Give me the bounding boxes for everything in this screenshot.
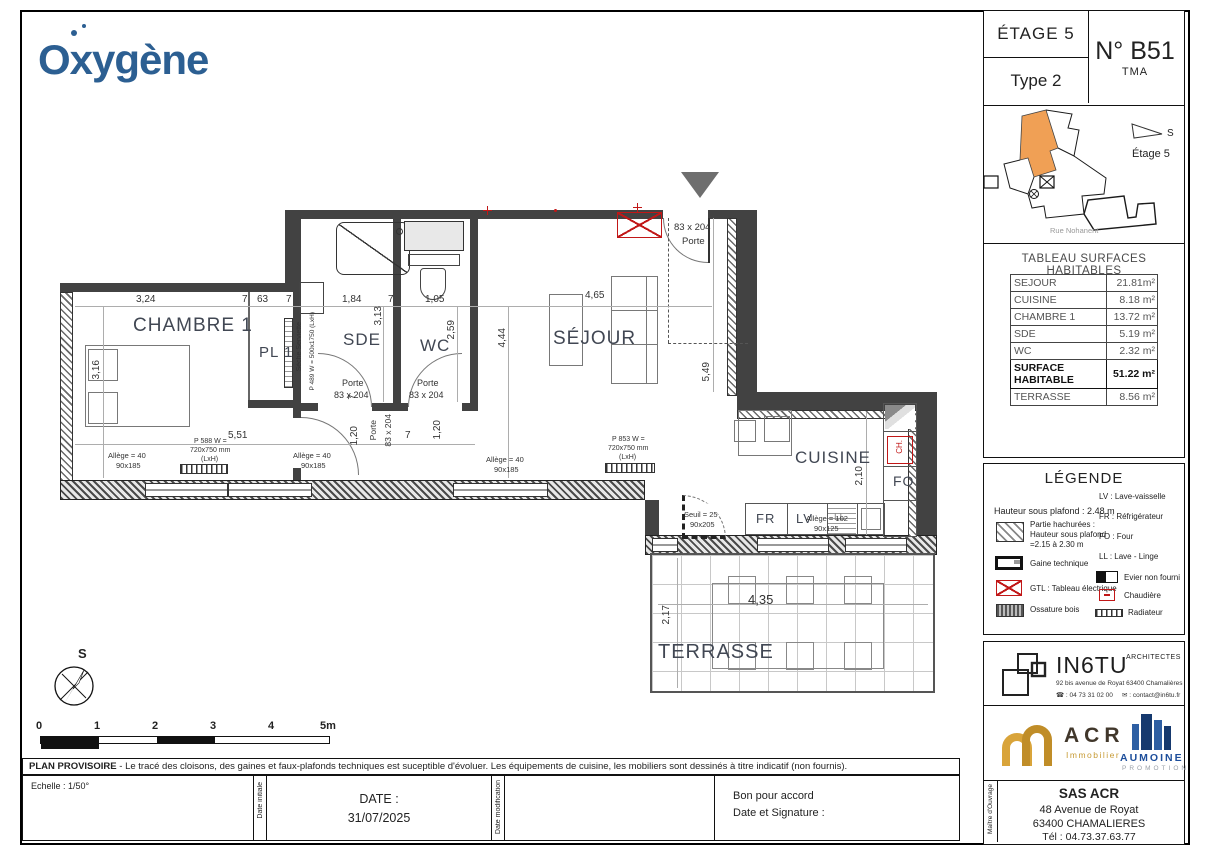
door-label: 83 x 204	[334, 390, 369, 400]
unit-floor-cell: ÉTAGE 5	[984, 11, 1089, 58]
radiator-chambre	[180, 464, 228, 474]
partition-pl1-bottom	[248, 400, 301, 408]
boiler-label: CH.	[895, 440, 904, 454]
chaudiere-icon-mark	[1104, 594, 1110, 596]
map-compass-icon	[1132, 124, 1162, 138]
legend-lv: LV : Lave-vaisselle	[1099, 492, 1166, 501]
terrasse-chair	[844, 642, 872, 670]
wall-kitchen-right	[917, 392, 937, 552]
radiator-label: 720x750 mm	[608, 445, 648, 452]
table-row: CHAMBRE 113.72 m²	[1011, 309, 1158, 326]
terrasse-chair	[786, 642, 814, 670]
dim-549: 5,49	[701, 362, 712, 381]
radiator-sejour	[605, 463, 655, 473]
wall-left-exterior	[60, 292, 73, 488]
disclaimer-title: PLAN PROVISOIRE	[29, 761, 117, 772]
window-label: 90x185	[116, 461, 141, 470]
dim-217: 2,17	[661, 605, 672, 624]
compass-rose-icon	[50, 662, 98, 710]
acr-sub: Immobilier	[1066, 750, 1120, 760]
architect-title: ARCHITECTES	[1126, 654, 1181, 661]
window-cuisine-2	[845, 538, 907, 552]
brand-logo: Oxygène	[38, 36, 208, 84]
window-label: Allège = 40	[293, 451, 331, 460]
dim-313: 3,13	[373, 306, 384, 325]
unit-floor: ÉTAGE 5	[997, 24, 1075, 44]
window-sejour	[453, 483, 548, 497]
owner-tel[interactable]: Tél : 04.73.37.63.77	[998, 831, 1180, 845]
table-row-total: SURFACE HABITABLE51.22 m²	[1011, 360, 1158, 389]
logo-bubble-icon	[82, 24, 86, 28]
hatch-zone-icon	[996, 522, 1024, 542]
aumoine-sub: PROMOTION	[1122, 765, 1189, 772]
legend-gaine: Gaine technique	[1030, 559, 1088, 568]
radiator-label: P 853 W =	[612, 436, 645, 443]
counter-sink	[861, 508, 881, 530]
counter-divider	[787, 503, 788, 535]
column-divider	[883, 466, 917, 467]
unit-highlight	[1020, 110, 1058, 177]
dim-120: 1,20	[432, 420, 443, 439]
wall-chambre-top	[60, 283, 295, 292]
unit-sub: TMA	[1122, 66, 1148, 78]
radiator-label: (LxH)	[619, 454, 636, 461]
scale-segment	[41, 743, 99, 749]
legend-fo: FO : Four	[1099, 532, 1133, 541]
dim-7: 7	[242, 294, 248, 305]
room-label-cuisine: CUISINE	[795, 448, 871, 468]
insulation-sejour-right	[727, 218, 737, 396]
site-map-panel: S Étage 5 Rue Nohanent	[983, 105, 1185, 245]
door-label: Porte	[342, 378, 364, 388]
date-value: 31/07/2025	[267, 809, 491, 828]
surface-label: CHAMBRE 1	[1011, 309, 1107, 326]
credits-panel: IN6TU ARCHITECTES 92 bis avenue de Royat…	[983, 641, 1185, 845]
dim-line	[508, 306, 509, 478]
owner-name: SAS ACR	[998, 785, 1180, 803]
gaine-icon-mark	[1014, 560, 1020, 564]
towel-radiator-label: P 489 W = 500x1750 (LxH)	[309, 312, 316, 390]
sofa-cushion-line	[611, 310, 658, 311]
shower-head-icon	[396, 228, 403, 235]
owner-role: Maître d'Ouvrage	[987, 784, 994, 834]
scale-tick: 3	[210, 720, 216, 732]
dim-7: 7	[286, 294, 292, 305]
radiateur-icon	[1095, 609, 1123, 617]
scale-segment	[157, 737, 215, 743]
legend-radiateur: Radiateur	[1128, 608, 1163, 617]
owner-addr2: 63400 CHAMALIERES	[998, 817, 1180, 831]
map-floor-label: Étage 5	[1132, 148, 1170, 160]
table-row: TERRASSE8.56 m²	[1011, 389, 1158, 406]
window-chambre-mullion	[227, 483, 229, 497]
towel-radiator-label: Sèche Serviette	[296, 322, 303, 371]
ceiling-zone-dash-h	[668, 343, 748, 345]
partition-sde-bottom-1	[301, 403, 318, 411]
dim-444: 4,44	[497, 328, 508, 347]
scale-tick: 5m	[320, 720, 336, 732]
echelle-cell: Echelle : 1/50°	[23, 776, 253, 840]
evier-icon	[1096, 571, 1118, 583]
counter-divider	[857, 503, 858, 535]
chambre-door-stub-top	[293, 408, 301, 418]
column-divider	[883, 431, 917, 432]
owner-addr1: 48 Avenue de Royat	[998, 803, 1180, 817]
dim-line	[103, 306, 104, 478]
ceiling-zone-dash-v	[668, 218, 670, 343]
window-label: 90x125	[814, 524, 839, 533]
radiator-label: 720x750 mm	[190, 447, 230, 454]
appliance-label-fr: FR	[756, 511, 775, 526]
window-label: 90x185	[301, 461, 326, 470]
legend-ceiling: Hauteur sous plafond : 2.48 m	[994, 506, 1115, 516]
dim-7: 7	[405, 430, 411, 441]
kitchen-chair	[734, 420, 756, 442]
chambre-door-stub-bottom	[293, 468, 301, 480]
architect-email[interactable]: ✉ : contact@in6tu.fr	[1122, 691, 1180, 699]
table-row: CUISINE8.18 m²	[1011, 292, 1158, 309]
dim-551: 5,51	[228, 430, 247, 441]
dim-line	[713, 218, 714, 392]
surfaces-table: SEJOUR21.81m² CUISINE8.18 m² CHAMBRE 113…	[1010, 274, 1158, 406]
dim-63: 63	[257, 294, 268, 305]
ossature-icon	[996, 604, 1024, 617]
acr-logo-icon	[998, 718, 1056, 768]
appliance-label-fo: FO	[893, 473, 914, 489]
washbasin	[299, 282, 324, 314]
column-divider	[883, 500, 917, 501]
echelle-label: Echelle : 1/50°	[31, 781, 89, 791]
door-label-rot: 83 x 204	[383, 414, 393, 447]
window-cuisine-1	[757, 538, 829, 552]
sofa-backrest-line	[646, 276, 647, 384]
surface-value: 21.81m²	[1107, 275, 1158, 292]
room-label-sejour: SÉJOUR	[553, 328, 636, 350]
electrical-mark	[637, 203, 638, 212]
seuil-label: 90x205	[690, 520, 715, 529]
scale-segment	[215, 737, 273, 743]
owner-info: SAS ACR 48 Avenue de Royat 63400 CHAMALI…	[998, 785, 1180, 845]
surface-value: 8.56 m²	[1107, 389, 1158, 406]
room-label-sde: SDE	[343, 330, 381, 350]
dim-465: 4,65	[585, 290, 604, 301]
unit-title-block: ÉTAGE 5 Type 2 N° B51 TMA	[983, 10, 1185, 107]
table-row: WC2.32 m²	[1011, 343, 1158, 360]
kitchen-chair	[764, 416, 790, 442]
dim-line	[677, 558, 678, 688]
terrasse-chair	[844, 576, 872, 604]
surface-label: SURFACE HABITABLE	[1011, 360, 1107, 389]
date-initiale-strip: Date initiale	[253, 776, 267, 840]
legend-ll: LL : Lave - Linge	[1099, 552, 1158, 561]
unit-number: N° B51	[1095, 37, 1174, 66]
legend-fr: FR : Réfrigérateur	[1099, 512, 1163, 521]
approval-line2: Date et Signature :	[733, 805, 961, 822]
surface-value: 8.18 m²	[1107, 292, 1158, 309]
partition-sde-bottom-2	[372, 403, 408, 411]
wall-sejour-right	[737, 210, 757, 410]
wc-tank	[408, 254, 460, 266]
seuil-label: Seuil = 25	[684, 510, 718, 519]
dim-7: 7	[388, 294, 394, 305]
brand-logo-text: Oxygène	[38, 36, 208, 83]
legend-panel: LÉGENDE Hauteur sous plafond : 2.48 m Pa…	[983, 463, 1185, 635]
owner-role-strip: Maître d'Ouvrage	[984, 781, 998, 842]
surface-value: 5.19 m²	[1107, 326, 1158, 343]
entrance-door-label: Porte	[682, 236, 705, 247]
scale-tick: 1	[94, 720, 100, 732]
dim-line	[75, 306, 712, 307]
legend-evier: Evier non fourni	[1124, 573, 1180, 582]
unit-type-cell: Type 2	[984, 58, 1089, 103]
surface-label: WC	[1011, 343, 1107, 360]
scale-segment	[99, 737, 157, 743]
sink-not-provided-icon	[885, 405, 915, 429]
room-label-terrasse: TERRASSE	[658, 641, 774, 664]
radiator-label: P 588 W =	[194, 438, 227, 445]
dim-324: 3,24	[136, 294, 155, 305]
gtl-box-icon	[617, 212, 662, 238]
dim-316: 3,16	[91, 360, 102, 379]
architect-name: IN6TU	[1056, 652, 1127, 679]
architect-logo-icon	[1000, 650, 1052, 698]
terrasse-chair	[786, 576, 814, 604]
surface-value: 13.72 m²	[1107, 309, 1158, 326]
compass-label: S	[78, 646, 87, 661]
disclaimer-text: - Le tracé des cloisons, des gaines et f…	[117, 761, 848, 772]
date-initiale-label: Date initiale	[257, 782, 264, 819]
dim-184: 1,84	[342, 294, 361, 305]
approval-cell[interactable]: Bon pour accord Date et Signature :	[715, 776, 961, 840]
surfaces-panel: TABLEAU SURFACES HABITABLES SEJOUR21.81m…	[983, 243, 1185, 458]
dim-259: 2,59	[446, 320, 457, 339]
unit-number-cell: N° B51 TMA	[1089, 11, 1181, 103]
partition-wc-entree	[470, 210, 478, 410]
modification-cell	[505, 776, 715, 840]
electrical-mark	[487, 206, 488, 215]
owner-block: Maître d'Ouvrage SAS ACR 48 Avenue de Ro…	[984, 781, 1184, 842]
window-label: Allège = 40	[486, 455, 524, 464]
dim-435: 4,35	[748, 592, 773, 607]
scale-bar	[40, 736, 330, 744]
dim-105: 1,05	[425, 294, 444, 305]
window-label: Allège = 40	[108, 451, 146, 460]
room-label-pl1: PL 1	[259, 344, 293, 361]
window-label: Allège = 102	[806, 514, 848, 523]
scale-tick: 0	[36, 720, 42, 732]
architect-phone[interactable]: ☎ : 04 73 31 02 00	[1056, 691, 1113, 699]
aumoine-name: AUMOINE	[1120, 752, 1184, 764]
acr-name: ACR	[1064, 724, 1125, 748]
unit-type: Type 2	[1010, 71, 1061, 91]
architect-address: 92 bis avenue de Royat 63400 Chamalières	[1056, 680, 1182, 687]
date-modification-strip: Date modification	[491, 776, 505, 840]
entrance-door-label: 83 x 204	[674, 222, 710, 233]
gtl-icon	[996, 580, 1022, 596]
table-row: SEJOUR21.81m²	[1011, 275, 1158, 292]
partition-wc-bottom	[462, 403, 478, 411]
door-label: 83 x 204	[409, 390, 444, 400]
logo-bubble-icon	[71, 30, 77, 36]
wc-cabinet	[404, 221, 464, 251]
date-cell: DATE : 31/07/2025	[267, 776, 491, 840]
footer-table: Echelle : 1/50° Date initiale DATE : 31/…	[22, 775, 960, 841]
surface-label: SDE	[1011, 326, 1107, 343]
scale-tick: 2	[152, 720, 158, 732]
dim-line	[658, 604, 928, 605]
window-terrasse-left	[652, 538, 678, 552]
radiator-label: (LxH)	[201, 456, 218, 463]
legend-chaudiere: Chaudière	[1124, 591, 1161, 600]
map-street-label: Rue Nohanent	[1050, 226, 1098, 235]
architect-block: IN6TU ARCHITECTES 92 bis avenue de Royat…	[984, 642, 1184, 706]
window-label: 90x185	[494, 465, 519, 474]
site-map-drawing	[984, 106, 1181, 240]
electrical-mark	[554, 209, 557, 212]
dim-120: 1,20	[349, 426, 360, 445]
map-compass-label: S	[1167, 128, 1174, 139]
approval-line1: Bon pour accord	[733, 788, 961, 805]
legend-title: LÉGENDE	[984, 470, 1184, 487]
pl1-open-line	[248, 292, 250, 400]
promoters-block: ACR Immobilier AUMOINE PROMOTION	[984, 706, 1184, 781]
door-label: Porte	[417, 378, 439, 388]
table-row: SDE5.19 m²	[1011, 326, 1158, 343]
door-label-rot: Porte	[368, 420, 378, 440]
date-label: DATE :	[267, 790, 491, 809]
disclaimer-row: PLAN PROVISOIRE - Le tracé des cloisons,…	[22, 758, 960, 775]
surface-label: CUISINE	[1011, 292, 1107, 309]
scale-tick: 4	[268, 720, 274, 732]
dim-line	[457, 306, 458, 402]
legend-hatched: Partie hachurées : Hauteur sous plafond …	[1030, 520, 1106, 550]
dim-line	[75, 444, 475, 445]
room-label-chambre1: CHAMBRE 1	[133, 315, 253, 337]
dim-line	[866, 412, 867, 535]
surface-value: 51.22 m²	[1107, 360, 1158, 389]
dim-210: 2,10	[854, 466, 865, 485]
surface-label: SEJOUR	[1011, 275, 1107, 292]
surface-value: 2.32 m²	[1107, 343, 1158, 360]
surface-label: TERRASSE	[1011, 389, 1107, 406]
entry-arrow-icon	[681, 172, 719, 198]
date-modification-label: Date modification	[495, 780, 502, 834]
legend-ossature: Ossature bois	[1030, 605, 1079, 614]
aumoine-logo-icon	[1130, 712, 1176, 750]
